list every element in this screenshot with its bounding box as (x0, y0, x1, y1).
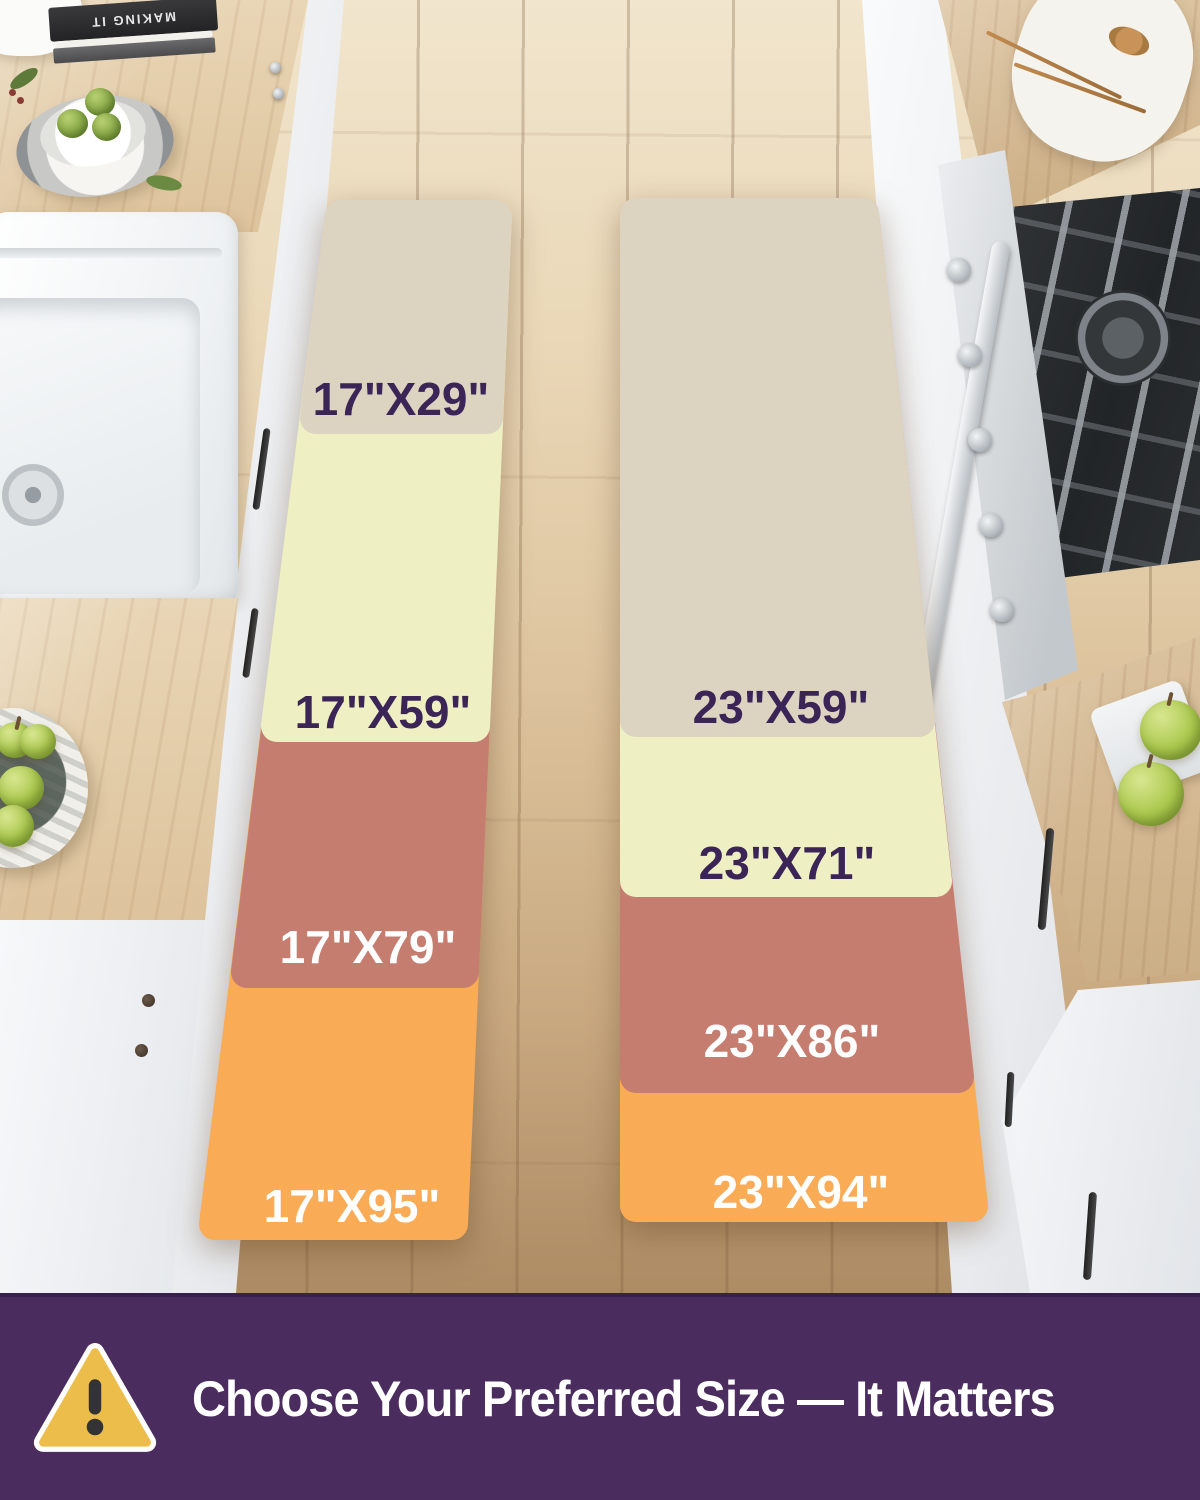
mat-23x59 (636, 214, 919, 721)
product-image: MAKING IT (0, 0, 1200, 1500)
size-label-17x95: 17"X95" (264, 1179, 441, 1233)
size-label-23x86: 23"X86" (704, 1014, 881, 1068)
size-label-23x71: 23"X71" (699, 836, 876, 890)
size-label-17x29: 17"X29" (313, 372, 490, 426)
exclamation-dot (87, 1418, 104, 1435)
size-label-17x79: 17"X79" (280, 920, 457, 974)
exclamation-bar (89, 1379, 101, 1414)
size-label-23x59: 23"X59" (693, 680, 870, 734)
size-label-23x94: 23"X94" (713, 1165, 890, 1219)
notice-banner: Choose Your Preferred Size — It Matters (0, 1293, 1200, 1500)
size-overlay (0, 0, 1200, 1500)
warning-triangle-icon (32, 1342, 158, 1456)
banner-text: Choose Your Preferred Size — It Matters (192, 1370, 1055, 1428)
size-label-17x59: 17"X59" (295, 685, 472, 739)
